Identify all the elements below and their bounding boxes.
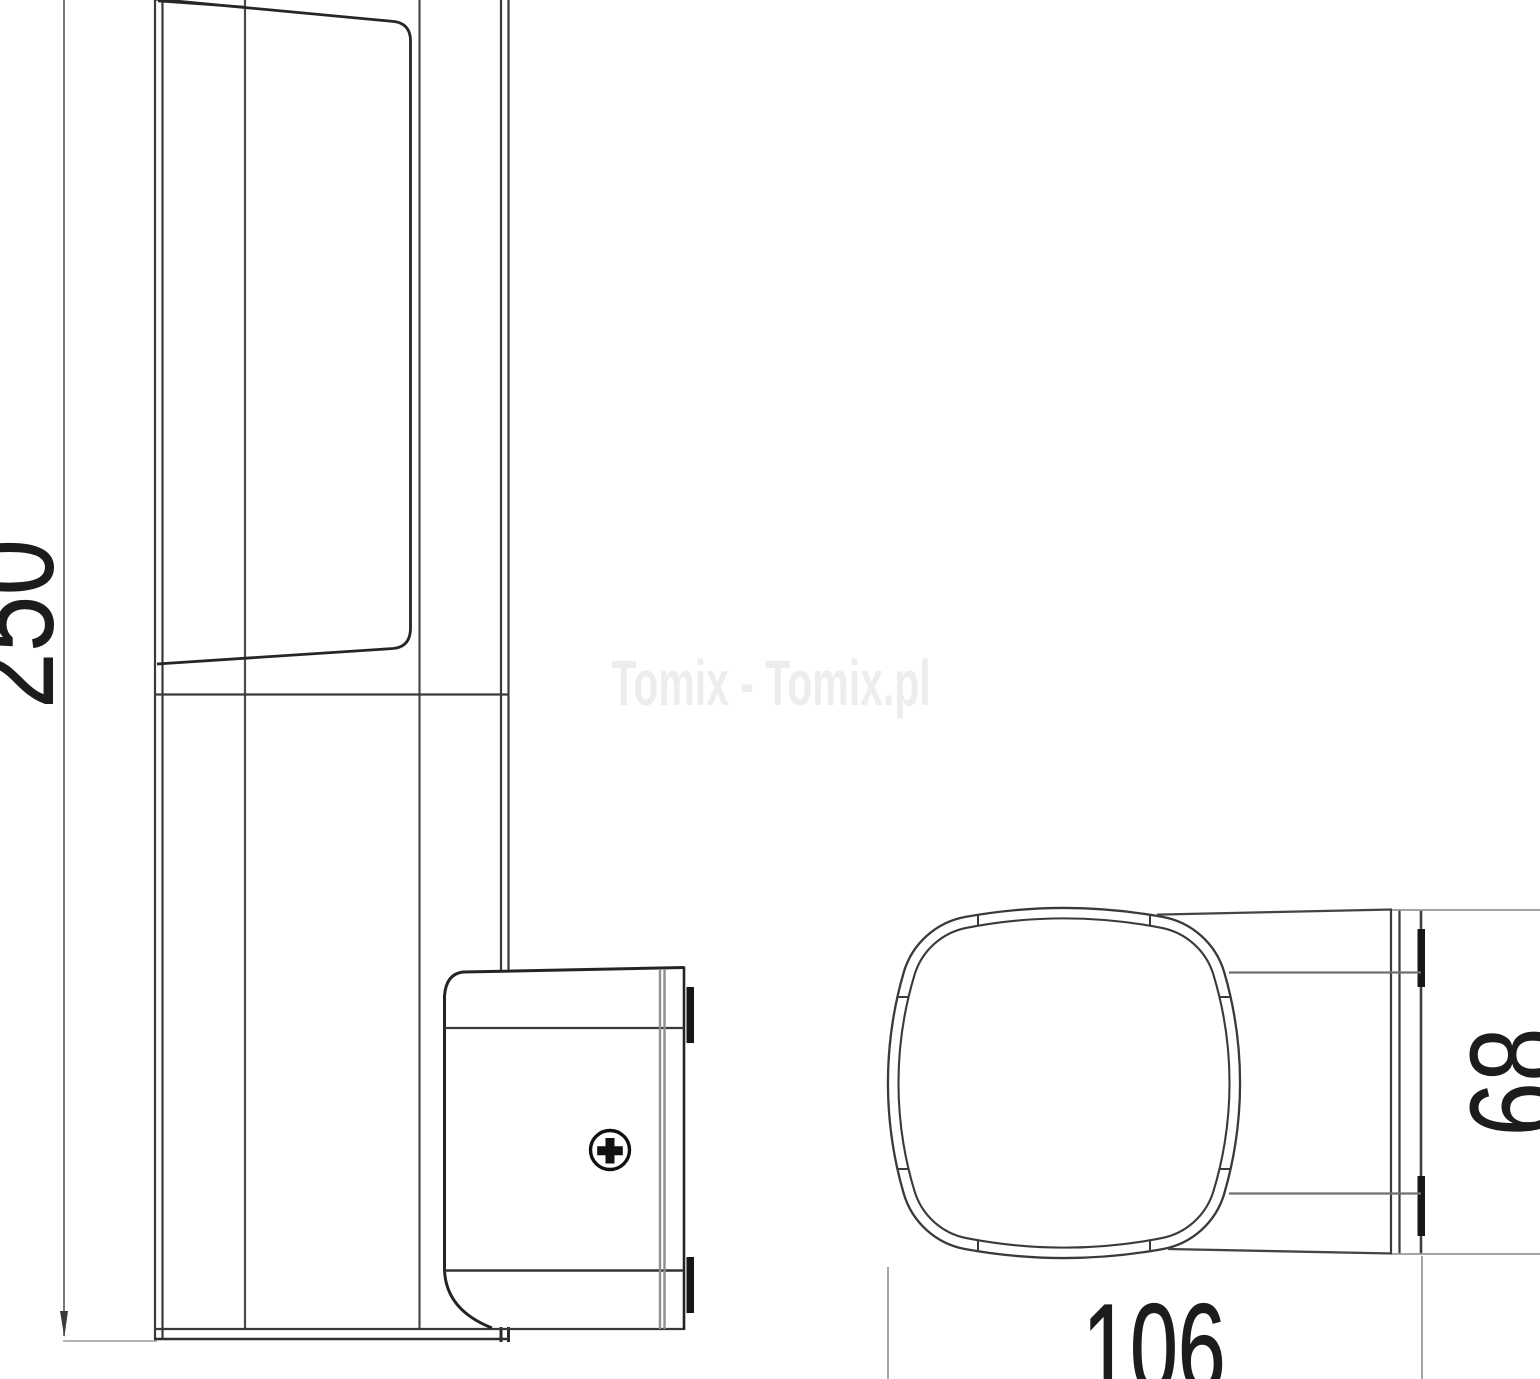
svg-text:Tomix - Tomix.pl: Tomix - Tomix.pl — [611, 648, 930, 719]
svg-text:68: 68 — [1444, 1027, 1540, 1136]
svg-text:106: 106 — [1083, 1277, 1226, 1379]
svg-text:250: 250 — [0, 539, 80, 709]
